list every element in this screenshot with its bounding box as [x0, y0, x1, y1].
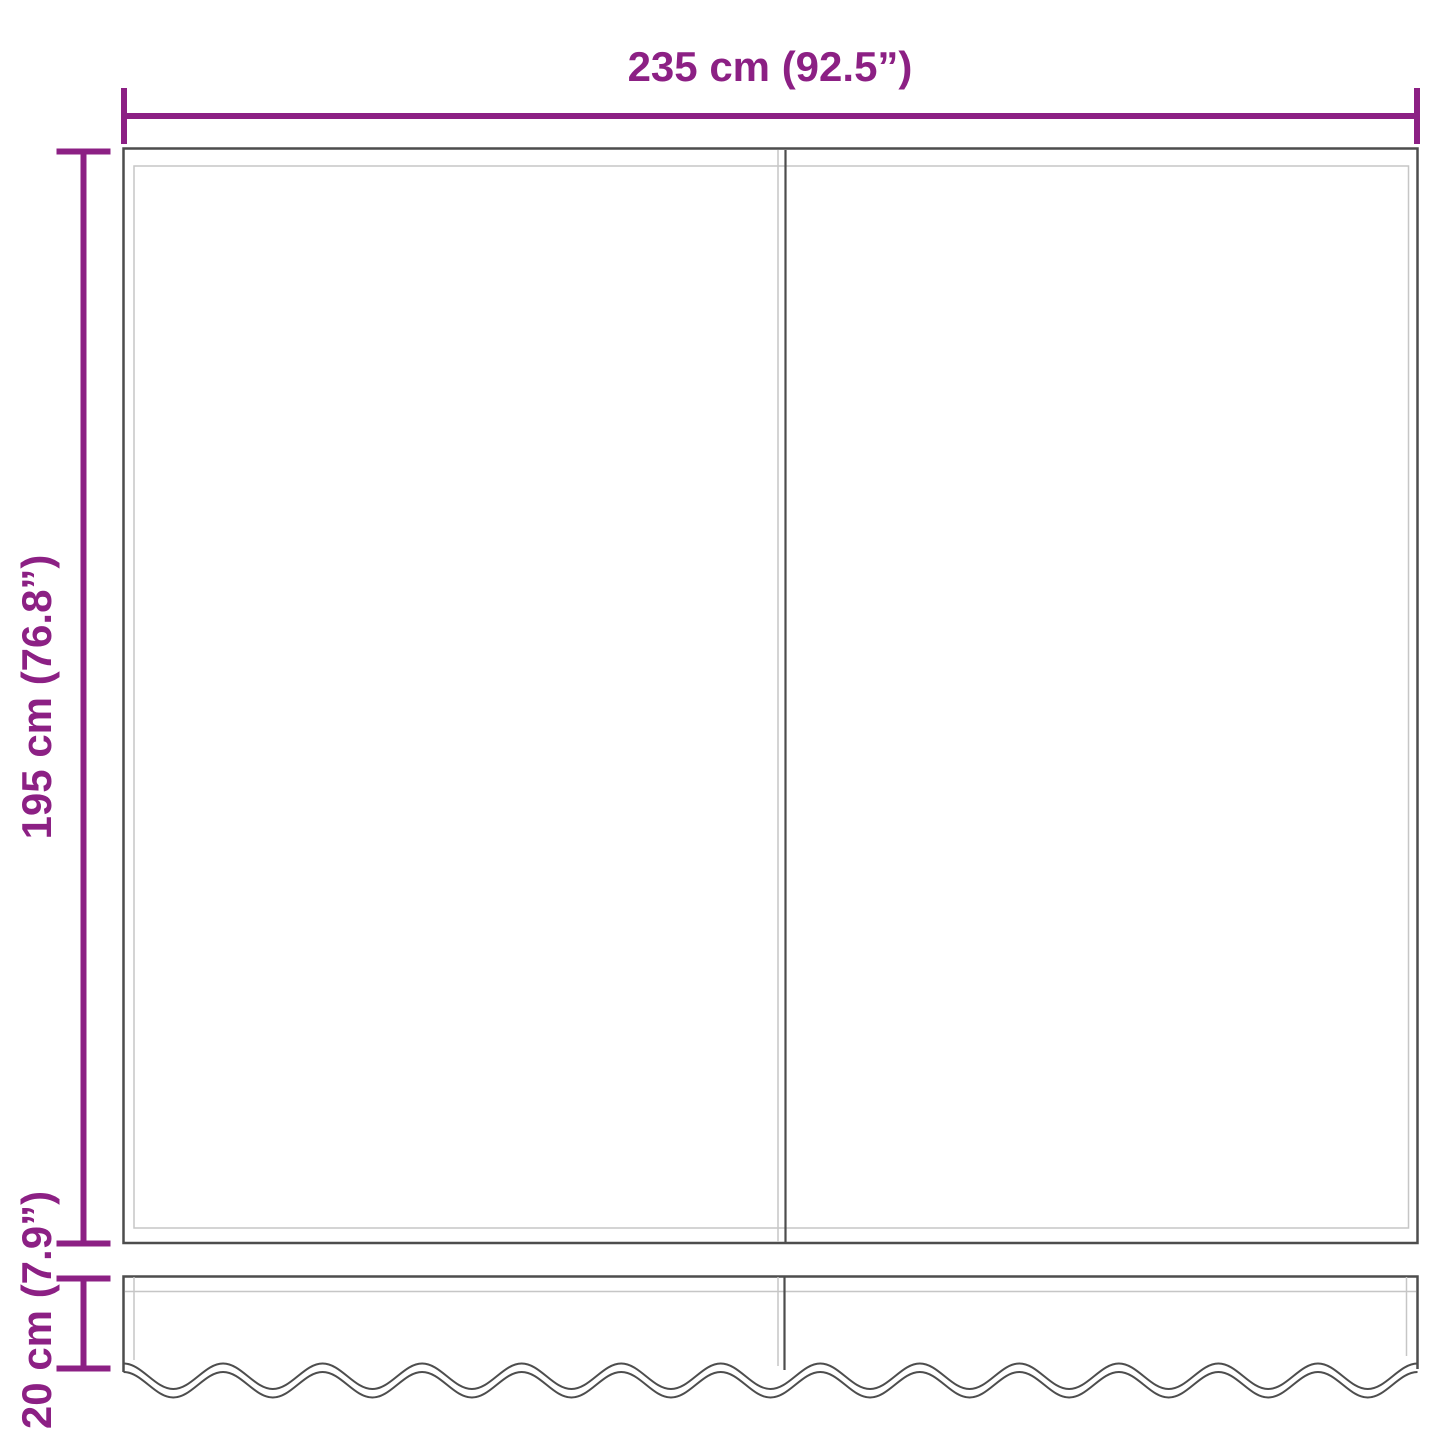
awning-diagram-drawing	[0, 0, 1445, 1445]
valance-height-dimension	[57, 1279, 111, 1369]
main-panel-outline	[124, 149, 1418, 1244]
height-dimension	[57, 152, 111, 1244]
valance-scallop-lower	[124, 1372, 1418, 1398]
width-dimension	[124, 88, 1417, 144]
main-panel-hem-line	[134, 166, 1409, 1228]
valance-scallop-upper	[124, 1364, 1418, 1390]
height-dimension-label: 195 cm (76.8”)	[16, 555, 58, 840]
width-dimension-label: 235 cm (92.5”)	[628, 46, 913, 88]
valance-height-dimension-label: 20 cm (7.9”)	[16, 1191, 58, 1429]
dimension-diagram-canvas: 235 cm (92.5”) 195 cm (76.8”) 20 cm (7.9…	[0, 0, 1445, 1445]
